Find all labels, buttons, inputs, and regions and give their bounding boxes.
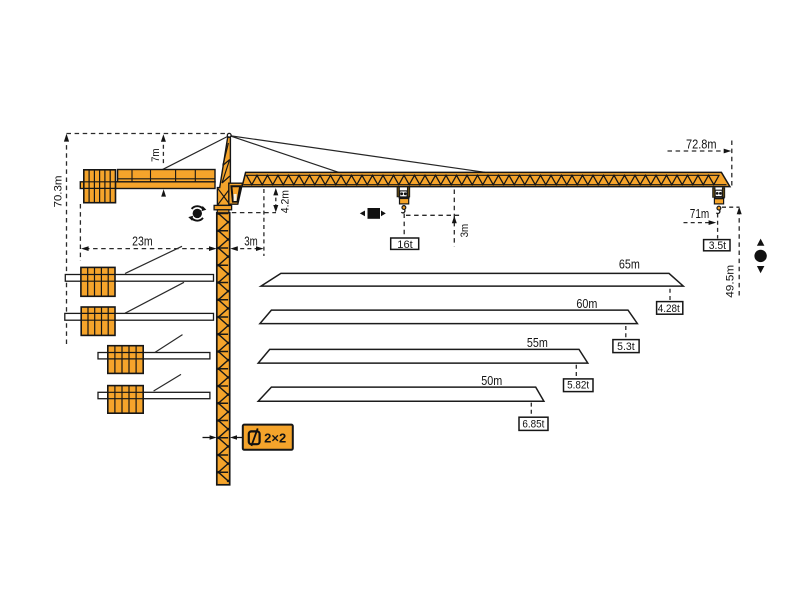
- svg-text:49.5m: 49.5m: [725, 265, 737, 298]
- svg-text:55m: 55m: [527, 336, 548, 350]
- svg-text:5.3t: 5.3t: [617, 341, 635, 353]
- svg-text:4.2m: 4.2m: [279, 190, 291, 213]
- svg-text:3m: 3m: [459, 224, 471, 238]
- svg-text:65m: 65m: [619, 257, 640, 271]
- svg-text:72.8m: 72.8m: [686, 137, 717, 151]
- svg-text:4.28t: 4.28t: [658, 303, 680, 315]
- svg-text:60m: 60m: [576, 297, 597, 311]
- svg-text:71m: 71m: [690, 207, 710, 221]
- svg-text:5.82t: 5.82t: [567, 380, 589, 392]
- svg-text:2×2: 2×2: [264, 431, 286, 445]
- svg-text:70.3m: 70.3m: [52, 176, 64, 208]
- svg-text:50m: 50m: [481, 374, 502, 388]
- svg-text:23m: 23m: [132, 235, 153, 249]
- svg-text:3.5t: 3.5t: [709, 240, 726, 252]
- svg-text:6.85t: 6.85t: [522, 419, 544, 431]
- svg-text:3m: 3m: [244, 235, 258, 249]
- svg-text:7m: 7m: [150, 149, 162, 163]
- svg-text:16t: 16t: [397, 239, 412, 251]
